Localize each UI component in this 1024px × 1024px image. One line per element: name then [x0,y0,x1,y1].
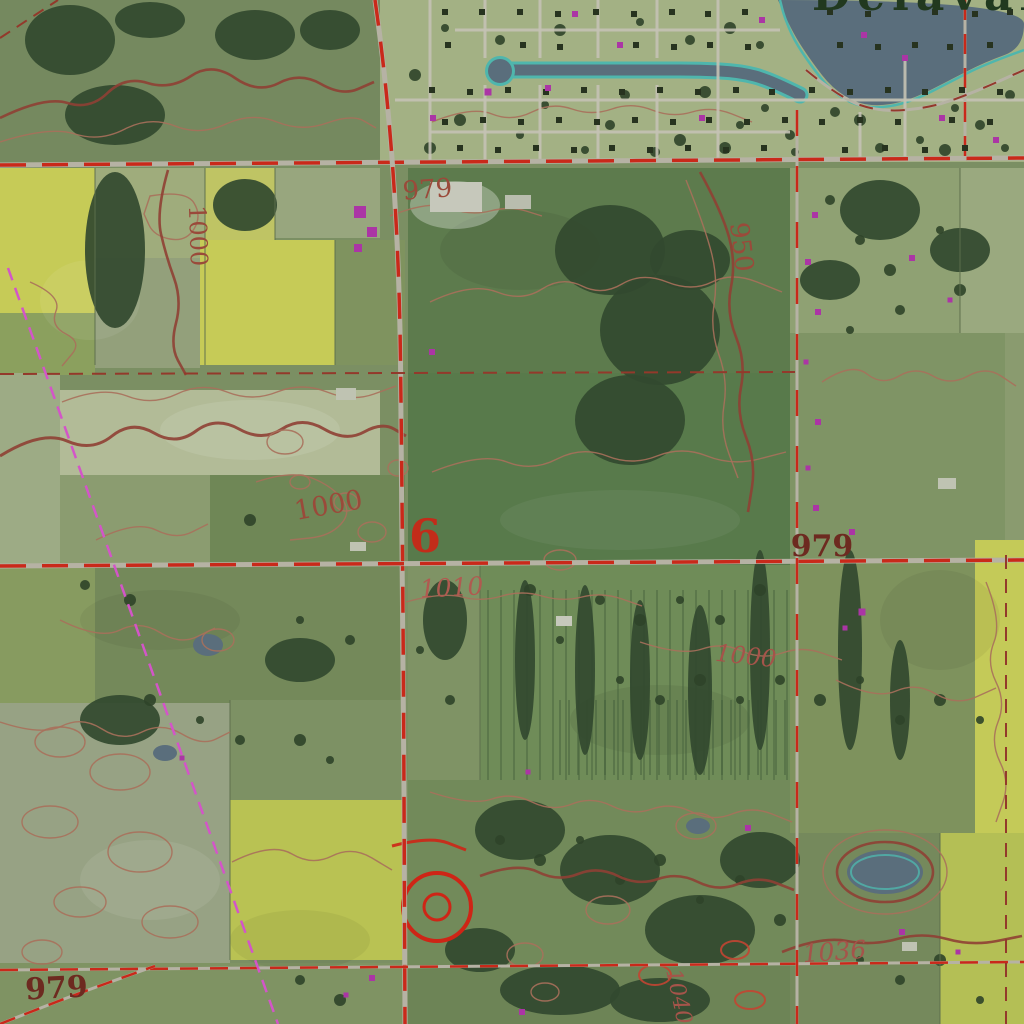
tree [975,120,985,130]
tree [196,716,204,724]
farm-building [938,478,956,489]
house [619,89,625,95]
building-magenta [902,55,908,61]
house [657,87,663,93]
contour-label-1000-b: 1000 [183,205,213,267]
building-magenta [369,975,375,981]
tree [445,695,455,705]
field-patch [0,373,60,565]
field-patch [335,240,405,365]
house [742,9,748,15]
woodland [650,230,730,290]
house [517,9,523,15]
woodland [85,172,145,328]
building-magenta [815,419,821,425]
farm-building [505,195,531,209]
woodland [25,5,115,75]
tree [495,35,505,45]
building-magenta [430,115,436,121]
house [706,117,712,123]
house [609,145,615,151]
house [782,117,788,123]
woodland [265,638,335,682]
woodland [115,2,185,38]
tree [884,264,896,276]
field-patch [230,700,405,800]
woodland [560,835,660,905]
tree [855,235,865,245]
tree [895,715,905,725]
building-magenta [815,309,821,315]
tree [80,580,90,590]
house [671,44,677,50]
woodland [475,800,565,860]
tree [581,146,589,154]
tree [696,896,704,904]
tree [756,41,764,49]
tree [495,835,505,845]
woodland [688,605,712,775]
house [533,145,539,151]
house [705,11,711,17]
house [670,119,676,125]
house [912,42,918,48]
house [842,147,848,153]
tree [916,136,924,144]
tree [814,694,826,706]
tree [895,975,905,985]
tree [244,514,256,526]
house [922,147,928,153]
tree [830,107,840,117]
house [744,119,750,125]
building-magenta [429,349,435,355]
house [631,11,637,17]
house [442,9,448,15]
lake-name-label: Delavan Lake [812,0,1024,21]
building-magenta [617,42,623,48]
building-magenta [519,1009,525,1015]
building-magenta [899,929,905,935]
house [895,119,901,125]
building-magenta [804,360,809,365]
tree [296,616,304,624]
building-magenta [861,32,867,38]
terrain-mottle [80,840,220,920]
house [429,87,435,93]
woodland [890,640,910,760]
tree [634,614,646,626]
tree [616,676,624,684]
building-magenta [805,259,811,265]
building-magenta [813,505,819,511]
tree [654,854,666,866]
house [442,119,448,125]
tree [976,996,984,1004]
house [949,117,955,123]
house [495,147,501,153]
tree [441,24,449,32]
tree [939,144,951,156]
contour-label-979-a: 979 [402,173,454,206]
tree [976,716,984,724]
woodland [215,10,295,60]
house [632,117,638,123]
tree [736,696,744,704]
house [882,145,888,151]
woodland [840,180,920,240]
tree [605,120,615,130]
building-magenta [956,950,961,955]
tree [936,226,944,234]
tree [595,595,605,605]
tree [895,305,905,315]
house [723,147,729,153]
terrain-mottle [230,910,370,970]
field-patch [940,833,1024,1024]
farm-building [336,388,356,400]
building-magenta [759,17,765,23]
house [505,87,511,93]
woodland [838,550,862,750]
house [987,42,993,48]
house [819,119,825,125]
woodland [515,580,535,740]
tree [774,914,786,926]
pond [193,634,223,656]
tree [235,735,245,745]
field-patch [60,475,210,565]
tree [1001,144,1009,152]
tree [676,596,684,604]
house [669,9,675,15]
house [987,119,993,125]
house [457,145,463,151]
tree [825,195,835,205]
tree [674,134,686,146]
house [467,89,473,95]
house [593,9,599,15]
house [857,117,863,123]
woodland [600,275,720,385]
channel-bulb [488,59,512,83]
tree [715,615,725,625]
field-patch [275,168,380,238]
spot-elevation-979-c: 979 [24,969,88,1007]
house [847,89,853,95]
house [479,9,485,15]
terrain-mottle [500,490,740,550]
tree [454,114,466,126]
building-magenta [993,137,999,143]
tree [655,695,665,705]
pond [847,850,923,894]
building-magenta [354,244,362,252]
tree [761,104,769,112]
house [695,89,701,95]
house [733,87,739,93]
house [809,87,815,93]
house [947,44,953,50]
tree [694,674,706,686]
tree [294,734,306,746]
field-patch [200,240,335,365]
building-magenta [344,993,349,998]
tree [326,756,334,764]
tree [846,326,854,334]
woodland [213,179,277,231]
house [745,44,751,50]
tree [534,854,546,866]
field-patch [975,540,1024,833]
building-magenta [745,825,751,831]
building-magenta [545,85,551,91]
house [571,147,577,153]
tree [856,676,864,684]
house [633,42,639,48]
house [556,117,562,123]
building-magenta [948,298,953,303]
farm-building [556,616,572,626]
contour-label-950: 950 [723,221,759,274]
house [685,145,691,151]
building-magenta [572,11,578,17]
building-magenta [354,206,366,218]
house [707,42,713,48]
building-magenta [367,227,377,237]
terrain-mottle [160,400,340,460]
house [769,89,775,95]
house [885,87,891,93]
house [647,147,653,153]
topo-aerial-map[interactable]: 1000100010009509799799791010103610406Del… [0,0,1024,1024]
tree [636,18,644,26]
building-magenta [859,609,866,616]
pond [686,818,710,834]
contour-label-1010: 1010 [419,571,484,603]
house [555,11,561,17]
building-magenta [699,115,705,121]
tree [416,646,424,654]
spot-elevation-979-b: 979 [791,529,854,564]
house [837,42,843,48]
building-magenta [843,626,848,631]
tree [409,69,421,81]
house [962,145,968,151]
house [445,42,451,48]
building-magenta [812,212,818,218]
house [761,145,767,151]
tree [295,975,305,985]
building-magenta [526,770,531,775]
tree [951,104,959,112]
section-number-6: 6 [409,509,441,563]
tree [724,22,736,34]
building-magenta [180,756,185,761]
house [922,89,928,95]
topo-aerial-map-viewport[interactable]: 1000100010009509799799791010103610406Del… [0,0,1024,1024]
tree [345,635,355,645]
building-magenta [485,89,492,96]
tree [775,675,785,685]
house [581,87,587,93]
house [518,119,524,125]
farm-building [902,942,917,951]
woodland [300,10,360,50]
building-magenta [939,115,945,121]
house [557,44,563,50]
tree [736,121,744,129]
tree [144,694,156,706]
house [520,42,526,48]
tree [754,584,766,596]
tree [556,636,564,644]
house [997,89,1003,95]
tree [685,35,695,45]
pond [153,745,177,761]
house [480,117,486,123]
house [959,87,965,93]
field-patch [1005,333,1024,555]
contour-label-1036: 1036 [802,935,868,968]
tree [576,836,584,844]
farm-building [350,542,366,551]
woodland [500,965,620,1015]
house [875,44,881,50]
woodland [800,260,860,300]
house [594,119,600,125]
building-magenta [909,255,915,261]
woodland [645,895,755,965]
woodland [575,585,595,755]
building-magenta [806,466,811,471]
